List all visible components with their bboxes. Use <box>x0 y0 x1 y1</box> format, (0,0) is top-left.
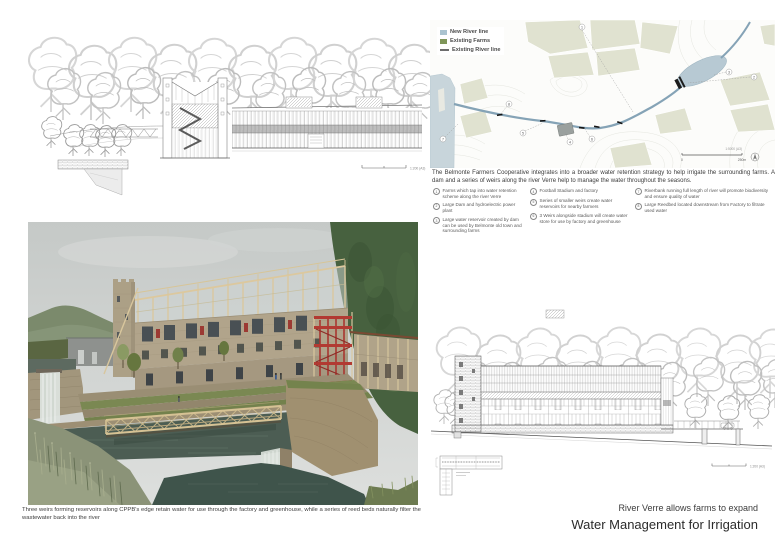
key-item: 7Riverbank running full length of river … <box>635 188 773 199</box>
key-number: 7 <box>635 188 642 195</box>
key-number: 3 <box>433 217 440 224</box>
louvre-band <box>481 392 661 399</box>
key-number: 2 <box>433 203 440 210</box>
elevation-drawing-bottom: 1:200 (A3) <box>428 280 775 502</box>
key-number: 6 <box>530 213 537 220</box>
cloud <box>208 228 348 252</box>
presentation-board: 1:200 (A3) <box>0 0 780 551</box>
board-titles: River Verre allows farms to expand Water… <box>571 503 758 532</box>
legend-label: Existing Farms <box>450 38 490 44</box>
key-item: 63 Weirs alongside stadium will create w… <box>530 213 628 224</box>
scale-bar: 1:200 (A3) <box>712 464 765 469</box>
stone-wall <box>58 160 128 169</box>
svg-text:5: 5 <box>522 131 524 135</box>
board-title: Water Management for Irrigation <box>571 517 758 532</box>
svg-text:7: 7 <box>442 137 444 141</box>
legend-item-new-river: New River line <box>440 29 501 35</box>
svg-text:1:5000 (A3): 1:5000 (A3) <box>725 147 742 151</box>
central-tower <box>160 78 230 158</box>
site-map: 1 2 3 4 5 6 7 8 0 250m 1:5000 (A3) <box>430 20 775 168</box>
svg-text:0: 0 <box>681 158 683 162</box>
svg-text:6: 6 <box>591 137 593 141</box>
new-river-swatch <box>440 30 447 35</box>
farms-swatch <box>440 39 447 44</box>
key-item: 1Farms which tap into water retention sc… <box>433 188 523 199</box>
key-column-1: 1Farms which tap into water retention sc… <box>433 188 523 234</box>
truss-footbridge <box>90 129 158 137</box>
building-elevation <box>452 356 673 433</box>
svg-text:1: 1 <box>581 25 583 29</box>
concrete-wedge <box>84 169 122 195</box>
svg-text:1:200 (A3): 1:200 (A3) <box>750 465 765 469</box>
svg-text:250m: 250m <box>738 158 747 162</box>
legend-label: New River line <box>450 29 488 35</box>
key-item: 8Large Reedbed located downstream from F… <box>635 202 773 213</box>
legend-label: Existing River line <box>452 47 501 53</box>
key-item: 3Large water reservoir created by dam ca… <box>433 217 523 234</box>
tower <box>455 356 481 432</box>
key-plan <box>436 456 502 495</box>
key-column-2: 4Football Stadium and factory 5Series of… <box>530 188 628 234</box>
hatched-block <box>546 310 564 318</box>
svg-text:4: 4 <box>569 140 571 144</box>
key-number: 8 <box>635 203 642 210</box>
elevation-top-svg: 1:200 (A3) <box>10 8 430 200</box>
map-paragraph: The Belmonte Farmers Cooperative integra… <box>432 170 775 186</box>
key-item: 4Football Stadium and factory <box>530 188 628 195</box>
render-svg <box>28 222 418 505</box>
lower-bays <box>481 399 661 425</box>
key-column-3: 7Riverbank running full length of river … <box>635 188 773 234</box>
key-number: 1 <box>433 188 440 195</box>
render-caption: Three weirs forming reservoirs along CPP… <box>22 507 424 523</box>
key-number: 4 <box>530 188 537 195</box>
elevation-bottom-svg: 1:200 (A3) <box>428 280 775 502</box>
elevation-drawing-top: 1:200 (A3) <box>10 8 430 200</box>
key-item: 2Large Dam and hydroelectric power plant <box>433 202 523 213</box>
legend-item-existing-river: Existing River line <box>440 47 501 53</box>
scale-bar: 1:200 (A3) <box>362 165 425 171</box>
river-line-swatch <box>440 49 449 50</box>
long-building <box>232 97 422 151</box>
key-item: 5Series of smaller weirs create water re… <box>530 198 628 209</box>
key-number: 5 <box>530 199 537 206</box>
svg-text:2: 2 <box>753 75 755 79</box>
annex-building <box>350 332 418 392</box>
svg-text:8: 8 <box>508 102 510 106</box>
legend-item-farms: Existing Farms <box>440 38 501 44</box>
svg-text:3: 3 <box>728 70 730 74</box>
render-image <box>28 222 418 505</box>
plinth <box>452 425 673 433</box>
svg-text:1:200 (A3): 1:200 (A3) <box>410 167 425 171</box>
map-legend: New River line Existing Farms Existing R… <box>437 27 504 55</box>
map-key: 1Farms which tap into water retention sc… <box>433 188 775 234</box>
board-subtitle: River Verre allows farms to expand <box>571 503 758 513</box>
